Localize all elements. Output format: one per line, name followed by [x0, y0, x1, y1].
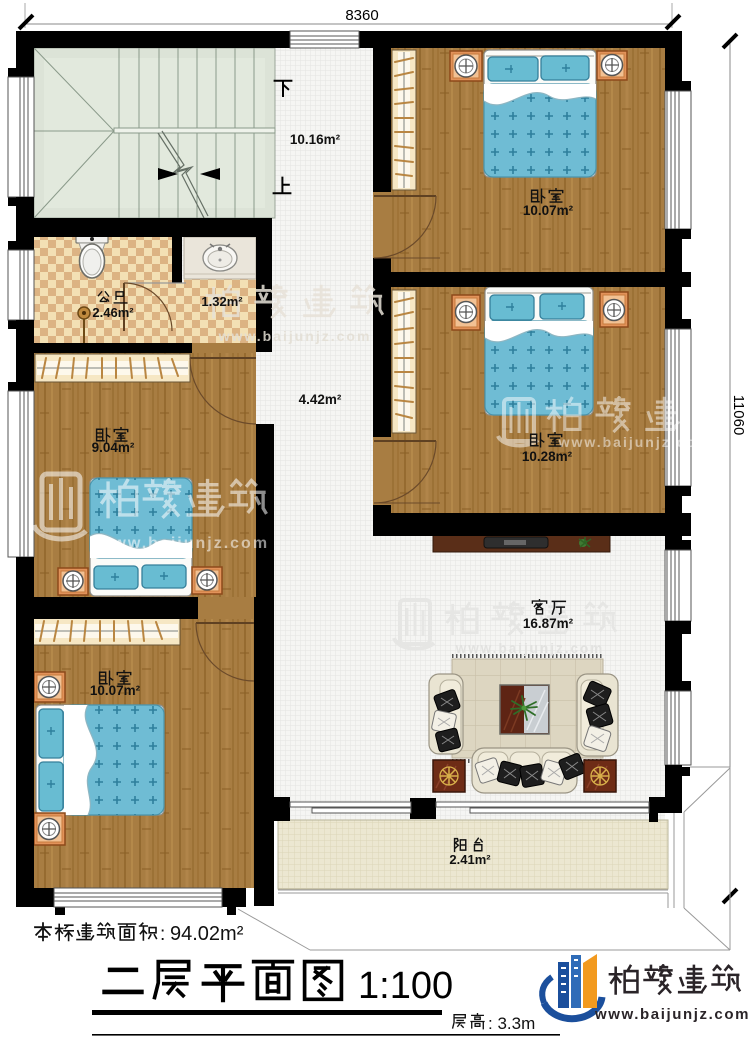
svg-text:10.28m²: 10.28m² [522, 449, 573, 464]
svg-text:www.baijunjz.com: www.baijunjz.com [218, 328, 372, 344]
svg-text:4.42m²: 4.42m² [299, 392, 342, 407]
svg-text:www.baijunjz.com: www.baijunjz.com [455, 641, 605, 656]
svg-text:www.baijunjz.com: www.baijunjz.com [594, 1006, 750, 1023]
svg-text:www.baijunjz.com: www.baijunjz.com [558, 434, 712, 450]
svg-text:1:100: 1:100 [358, 965, 453, 1007]
svg-text:: 3.3m: : 3.3m [488, 1014, 535, 1033]
svg-text:8360: 8360 [345, 7, 378, 24]
svg-text:10.16m²: 10.16m² [290, 132, 341, 147]
svg-text:2.46m²: 2.46m² [92, 305, 134, 320]
svg-text:94.02m²: 94.02m² [170, 923, 244, 945]
svg-text:11060: 11060 [730, 395, 747, 436]
svg-text:10.07m²: 10.07m² [523, 203, 574, 218]
svg-text:2.41m²: 2.41m² [449, 852, 491, 867]
svg-text::: : [160, 924, 165, 945]
svg-text:10.07m²: 10.07m² [90, 683, 141, 698]
svg-text:9.04m²: 9.04m² [92, 440, 135, 455]
svg-text:16.87m²: 16.87m² [523, 616, 574, 631]
svg-text:1.32m²: 1.32m² [201, 294, 243, 309]
svg-text:www.baijunjz.com: www.baijunjz.com [98, 535, 269, 552]
